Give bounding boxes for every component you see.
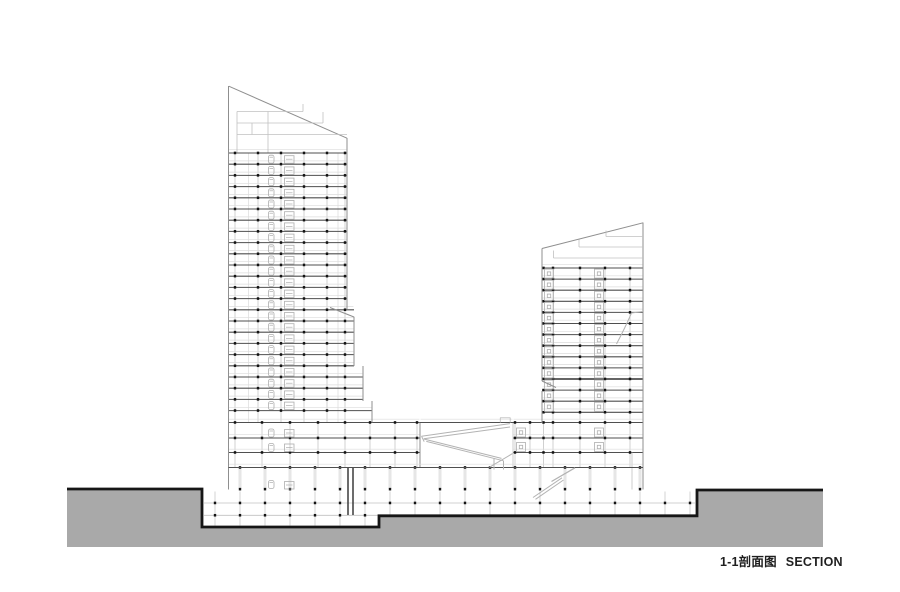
architectural-section-page: 1-1剖面图 SECTION — [0, 0, 900, 592]
podium-right — [513, 419, 643, 467]
podium-left — [229, 419, 421, 467]
ground-fill — [67, 489, 823, 547]
left-tower — [229, 150, 373, 423]
right-tower — [542, 265, 643, 423]
drawing-title-cn: 1-1剖面图 — [720, 551, 777, 570]
section-drawing — [0, 0, 900, 592]
ground-floor — [239, 466, 641, 490]
drawing-title-en: SECTION — [786, 555, 843, 569]
drawing-title: 1-1剖面图 SECTION — [720, 551, 843, 570]
